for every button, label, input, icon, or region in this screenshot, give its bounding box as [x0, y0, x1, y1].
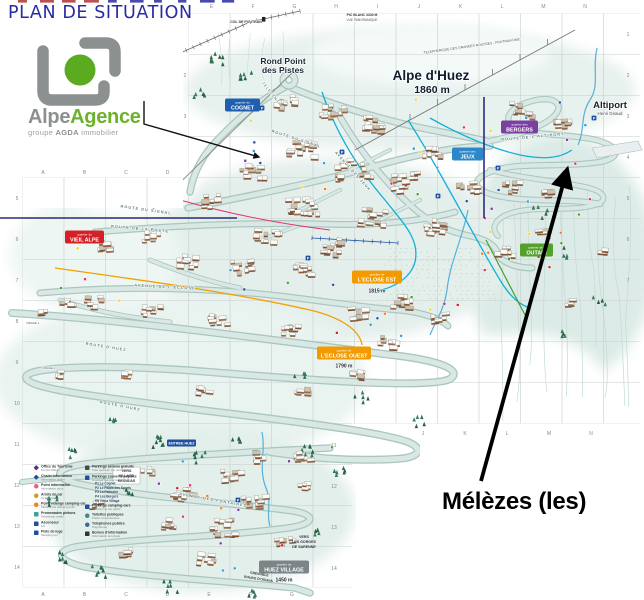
grid-label: M — [547, 431, 551, 437]
logo-brand-green: Agence — [70, 106, 140, 128]
legend-circle-icon — [85, 523, 90, 528]
legend-diamond-icon — [34, 474, 39, 479]
grid-label: 12 — [14, 483, 20, 489]
quartier-prefix: quartier du — [77, 233, 92, 237]
grid-label: M — [541, 4, 545, 10]
legend-label-en: Payphones — [92, 526, 125, 529]
legend-item: Piste de lugeSledging run — [34, 530, 63, 537]
logo-subtitle-part: AGDA — [56, 128, 79, 137]
grid-label: 13 — [331, 525, 337, 531]
legend-parking-entry: P5 Vieux Village — [95, 499, 131, 503]
grid-label: L — [506, 431, 509, 437]
legend-item: Parkings aériens gratuitsFree open-air c… — [85, 465, 134, 472]
grid-label: A — [41, 170, 45, 176]
page-title: PLAN DE SITUATION — [8, 3, 193, 23]
sign-line: DE SARENNE — [292, 545, 316, 549]
legend-circle-icon — [85, 514, 90, 519]
quartier-prefix: quartier de — [277, 563, 292, 567]
legend-item: Bornes d'informationInformation terminal… — [85, 531, 127, 538]
virage-2-label: VIRAGE 2 — [42, 366, 56, 370]
legend-square-icon — [85, 476, 90, 481]
legend-item: Promenades piétonsPedestrian walks — [34, 512, 75, 519]
legend-item: Arrêts de carCoach stops — [34, 493, 63, 500]
grid-label: A — [41, 592, 45, 598]
grid-label: G — [290, 592, 294, 598]
logo-subtitle: groupe AGDA immobilier — [28, 129, 141, 137]
legend-item: Toilettes publiquesPublic conveniences — [85, 513, 124, 520]
quartier-prefix: quartier du — [235, 101, 250, 105]
legend-item: Point vidange camping-carMotorhome drain… — [34, 502, 86, 509]
legend-label-en: Coach stops — [41, 497, 63, 500]
grid-label: K — [459, 4, 463, 10]
legend-diamond-icon — [34, 465, 39, 470]
grid-label: B — [83, 592, 87, 598]
altiport-label: Altiport — [593, 100, 628, 111]
legend-square-icon — [85, 466, 90, 471]
legend-label-en: Motorhome draining point — [41, 506, 86, 509]
legend-item: Chalet InformationInformation chalet — [34, 474, 72, 481]
legend-circle-icon — [34, 493, 39, 498]
quartier-label-cognet: quartier du COGNET — [225, 99, 260, 112]
legend-item: Téléphones publicsPayphones — [85, 522, 125, 529]
logo-subtitle-part: immobilier — [79, 128, 119, 137]
grid-label: 12 — [331, 484, 337, 490]
grid-label: 6 — [627, 237, 630, 243]
legend-square-icon — [34, 521, 39, 526]
quartier-prefix: quartier des — [459, 150, 476, 154]
grid-label: 1 — [627, 32, 630, 38]
grid-label: H — [334, 4, 338, 10]
resort-name-label: Alpe d'Huez — [393, 68, 470, 83]
plan-de-situation: EFGHIJKLMNABCDABCDEFGJKLMN12345675678910… — [0, 0, 644, 600]
grid-label: E — [207, 592, 211, 598]
grid-label: 3 — [627, 114, 630, 120]
legend-label-en: Sledging run — [41, 534, 63, 537]
svg-text:P: P — [307, 257, 310, 261]
quartier-label-vieil-alpe: quartier du VIEIL ALPE — [65, 231, 104, 244]
legend-parkings-list: P1 Le CognetP2 Le Palais des SportsP3 La… — [95, 482, 131, 504]
grid-label: C — [124, 592, 128, 598]
logo-brand: AlpeAgence — [28, 107, 141, 127]
quartier-name: L'ECLOSE EST — [358, 278, 397, 284]
legend-label-en: Tourist Office — [41, 469, 73, 472]
svg-text:P: P — [437, 195, 440, 199]
quartier-prefix: quartier de l' — [528, 246, 545, 250]
melezes-callout-label: Mélèzes (les) — [442, 488, 586, 516]
grid-label: 7 — [627, 278, 630, 284]
quartier-altitude: 1790 m — [336, 364, 354, 370]
legend-label-en: Free open-air car parks — [92, 469, 134, 472]
svg-text:P: P — [261, 107, 264, 111]
grid-label: J — [418, 4, 421, 10]
sign-line: VERS — [299, 535, 309, 539]
grid-label: 11 — [14, 442, 19, 448]
logo-green-circle — [65, 55, 96, 86]
pic-blanc-label-line1: PIC BLANC 3330 M — [347, 13, 378, 17]
quartier-altitude: 1450 m — [276, 578, 294, 584]
legend-item: Point InformationInformation point — [34, 484, 70, 491]
quartier-prefix: quartier des — [511, 123, 528, 127]
legend-circle-icon — [34, 503, 39, 508]
svg-text:P: P — [593, 117, 596, 121]
grid-label: 9 — [16, 360, 19, 366]
entree-huez-sign: ENTREE HUEZ — [167, 440, 196, 447]
pic-blanc-label-line2: VUE PANORAMIQUE — [346, 18, 377, 22]
alpeagence-logo-text: AlpeAgence groupe AGDA immobilier — [28, 107, 141, 137]
quartier-name: COGNET — [231, 106, 255, 112]
logo-subtitle-part: groupe — [28, 128, 56, 137]
quartier-prefix: quartier de — [370, 273, 385, 277]
quartier-name: JEUX — [460, 155, 474, 161]
quartier-label-jeux: quartier des JEUX — [452, 148, 483, 161]
quartier-prefix: quartier de — [337, 349, 352, 353]
col-de-poutran-icon — [262, 17, 265, 22]
logo-brand-gray: Alpe — [28, 106, 70, 128]
grid-label: C — [124, 170, 128, 176]
grid-label: 14 — [14, 565, 20, 571]
quartier-altitude: 1815 m — [369, 289, 387, 295]
sign-line: LES GORGES — [292, 540, 316, 544]
grid-label: 7 — [16, 278, 19, 284]
svg-text:P: P — [497, 167, 500, 171]
grid-label: 2 — [627, 73, 630, 79]
legend-label-en: Public conveniences — [92, 517, 124, 520]
legend-square-icon — [85, 505, 90, 510]
grid-label: E — [210, 4, 214, 10]
grid-label: G — [293, 4, 297, 10]
grid-label: F — [251, 4, 254, 10]
legend-circle-icon — [34, 484, 39, 489]
grid-label: 14 — [331, 566, 337, 572]
grid-label: B — [83, 170, 87, 176]
svg-text:P: P — [341, 151, 344, 155]
grid-label: 10 — [14, 401, 20, 407]
legend-label-en: Pedestrian walks — [41, 516, 75, 519]
quartier-name: HUEZ VILLAGE — [264, 568, 304, 574]
legend-item: AscenseurLift — [34, 521, 59, 528]
grid-label: 5 — [16, 196, 19, 202]
altiport-sub-label: Henri Giraud — [598, 111, 623, 116]
legend-label-en: Motorhome car parks — [92, 508, 131, 511]
grid-label: 13 — [14, 524, 20, 530]
legend-square-icon — [34, 531, 39, 536]
quartier-name: L'ECLOSE OUEST — [321, 354, 369, 360]
quartier-name: BERGERS — [506, 128, 533, 134]
grid-label: N — [583, 4, 587, 10]
legend-label-en: Information point — [41, 488, 70, 491]
grid-label: I — [377, 4, 378, 10]
virage-1-label: VIRAGE 1 — [26, 321, 40, 325]
grid-label: 3 — [184, 114, 187, 120]
grid-label: 2 — [184, 73, 187, 79]
sign-line: ENTREE HUEZ — [168, 442, 195, 446]
grid-label: L — [501, 4, 504, 10]
grid-label: 6 — [16, 237, 19, 243]
grid-label: N — [589, 431, 593, 437]
grid-label: K — [463, 431, 467, 437]
alpeagence-logo-mark — [43, 43, 115, 100]
legend-square-icon — [34, 512, 39, 517]
legend-label-en: Information chalet — [41, 478, 72, 481]
quartier-name: VIEIL ALPE — [70, 238, 99, 244]
grid-label: 8 — [16, 319, 19, 325]
legend: Office du TourismeTourist OfficeChalet I… — [30, 460, 180, 540]
legend-item: Office du TourismeTourist Office — [34, 465, 73, 472]
legend-item: Parkings camping-carsMotorhome car parks — [85, 504, 131, 511]
resort-altitude-label: 1860 m — [414, 84, 450, 96]
grid-label: 4 — [627, 155, 630, 161]
legend-label-en: Lift — [41, 525, 59, 528]
quartier-label-bergers: quartier des BERGERS — [501, 121, 538, 134]
grid-label: 5 — [627, 196, 630, 202]
col-de-poutran-label: COL DE POUTRAN — [230, 20, 262, 24]
legend-square-icon — [85, 532, 90, 537]
rond-point-label-line2: des Pistes — [262, 65, 304, 75]
legend-label-en: Information terminals — [92, 535, 127, 538]
grid-label: J — [422, 431, 425, 437]
grid-label: D — [166, 170, 170, 176]
